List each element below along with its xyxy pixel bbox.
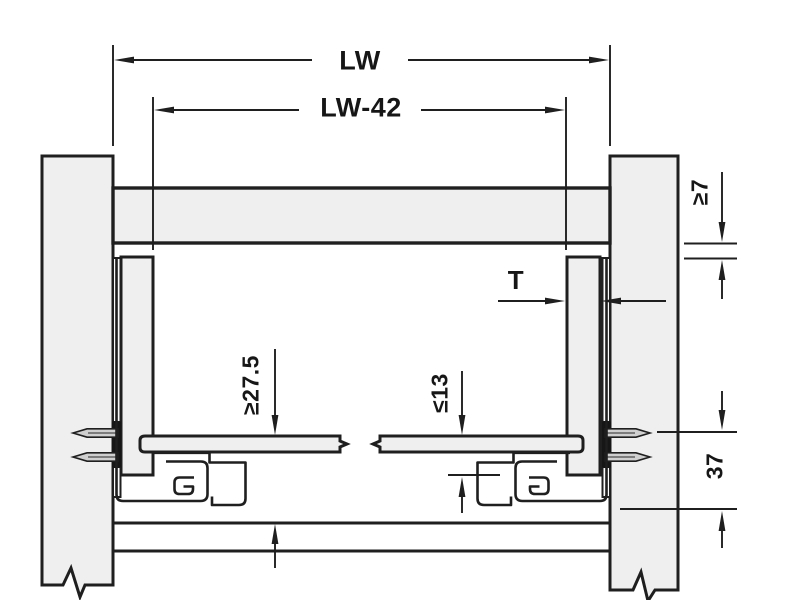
cabinet-side-panel-right — [610, 156, 678, 600]
arrow-down-icon — [719, 410, 726, 430]
arrow-down-icon — [459, 415, 466, 435]
label-max13: ≤13 — [429, 373, 452, 413]
arrow-right-icon — [545, 298, 565, 305]
cabinet-side-panel-left — [42, 156, 113, 597]
label-min7: ≥7 — [689, 179, 712, 205]
drawer-slide-cross-section — [0, 0, 800, 600]
label-lw: LW — [339, 48, 381, 75]
bottom-rail-panel — [113, 523, 610, 551]
arrow-down-icon — [272, 415, 279, 435]
top-rail-panel — [113, 188, 610, 243]
arrow-right-icon — [545, 107, 565, 114]
label-37: 37 — [704, 453, 727, 480]
arrow-up-icon — [459, 477, 466, 497]
label-t: T — [508, 267, 524, 293]
label-lw-42: LW-42 — [320, 95, 401, 122]
arrow-up-icon — [719, 260, 726, 280]
arrow-left-icon — [154, 107, 174, 114]
drawer-bottom-right — [373, 436, 583, 452]
label-min27-5: ≥27.5 — [240, 355, 263, 415]
drawer-bottom-left — [140, 436, 347, 452]
arrow-right-icon — [589, 57, 609, 64]
arrow-up-icon — [719, 511, 726, 531]
arrow-down-icon — [719, 222, 726, 242]
arrow-left-icon — [114, 57, 134, 64]
technical-drawing-canvas: LW LW-42 T ≥7 ≥27.5 ≤13 37 — [0, 0, 800, 600]
